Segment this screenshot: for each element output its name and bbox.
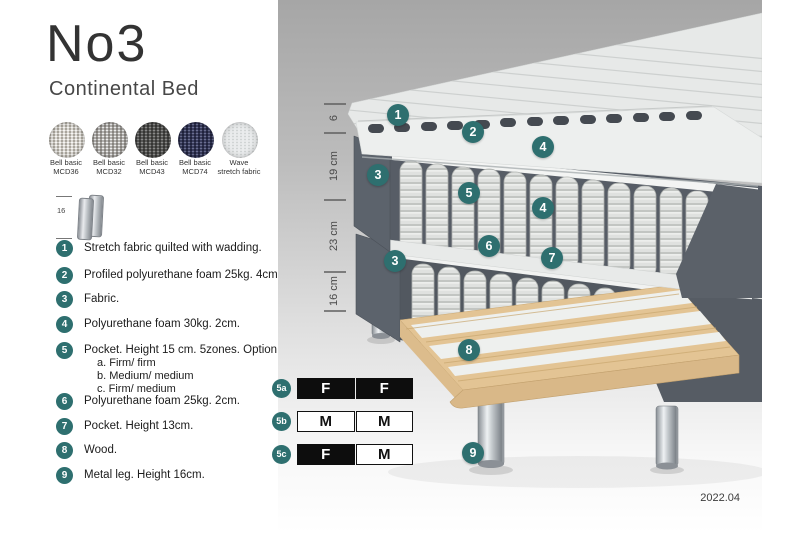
legend-item-6: 6 Polyurethane foam 25kg. 2cm. <box>56 393 286 410</box>
legend-number-badge: 4 <box>56 316 73 333</box>
legend-item-9: 9 Metal leg. Height 16cm. <box>56 467 286 484</box>
legend-option-a: a. Firm/ firm <box>97 357 287 369</box>
product-sheet: No3 Continental Bed Bell basicMCD36 Bell… <box>0 0 800 533</box>
legend-item-4: 4 Polyurethane foam 30kg. 2cm. <box>56 316 286 333</box>
firmness-cell: F <box>297 378 355 399</box>
fabric-swatch-mcd74 <box>178 122 214 158</box>
legend-number-badge: 1 <box>56 240 73 257</box>
swatch-label: Bell basicMCD32 <box>85 159 133 176</box>
callout-9-metal-leg: 9 <box>462 442 484 464</box>
callout-6-foam-base: 6 <box>478 235 500 257</box>
swatch-label: Bell basicMCD43 <box>128 159 176 176</box>
callout-4-foam-mid: 4 <box>532 197 554 219</box>
firmness-badge-5c: 5c <box>272 445 291 464</box>
callout-3-fabric-upper: 3 <box>367 164 389 186</box>
firmness-badge-5b: 5b <box>272 412 291 431</box>
fabric-swatch-mcd36 <box>49 122 85 158</box>
legend-item-1: 1 Stretch fabric quilted with wadding. <box>56 240 286 257</box>
legend-item-3: 3 Fabric. <box>56 291 286 308</box>
firmness-row-5c: 5c F M <box>272 444 422 466</box>
dimension-label-leg: 16 cm <box>328 261 342 321</box>
version-date: 2022.04 <box>628 492 740 504</box>
fabric-swatch-wave <box>222 122 258 158</box>
leg-height-value: 16 <box>57 206 65 215</box>
callout-8-wood: 8 <box>458 339 480 361</box>
legend-number-badge: 9 <box>56 467 73 484</box>
firmness-row-5a: 5a F F <box>272 378 422 400</box>
firmness-cell: F <box>297 444 355 465</box>
legend-option-b: b. Medium/ medium <box>97 370 287 382</box>
callout-7-pocket-13: 7 <box>541 247 563 269</box>
legend-number-badge: 6 <box>56 393 73 410</box>
firmness-bar: F M <box>297 444 413 465</box>
swatch-label: Bell basicMCD36 <box>42 159 90 176</box>
firmness-bar: F F <box>297 378 413 399</box>
dimension-tick <box>56 238 72 239</box>
legend-item-8: 8 Wood. <box>56 442 286 459</box>
legend-item-7: 7 Pocket. Height 13cm. <box>56 418 286 435</box>
dimension-tick <box>56 196 72 197</box>
metal-leg-icon <box>77 198 94 241</box>
legend-number-badge: 7 <box>56 418 73 435</box>
page-title: No3 <box>46 14 147 74</box>
leg-height-detail: 16 <box>56 192 116 242</box>
callout-5-pocket-15: 5 <box>458 182 480 204</box>
legend-number-badge: 3 <box>56 291 73 308</box>
legend-item-2: 2 Profiled polyurethane foam 25kg. 4cm. <box>56 267 286 284</box>
firmness-cell: F <box>356 378 414 399</box>
fabric-swatch-mcd32 <box>92 122 128 158</box>
swatch-label: Wavestretch fabric <box>215 159 263 176</box>
callout-2-profiled-foam: 2 <box>462 121 484 143</box>
legend-number-badge: 2 <box>56 267 73 284</box>
dimension-label-base: 23 cm <box>328 206 342 266</box>
page-subtitle: Continental Bed <box>49 78 199 101</box>
dimension-label-upper-mattress: 19 cm <box>328 136 342 196</box>
firmness-bar: M M <box>297 411 413 432</box>
callout-1-stretch-fabric: 1 <box>387 104 409 126</box>
firmness-cell: M <box>297 411 355 432</box>
firmness-cell: M <box>356 444 414 465</box>
firmness-cell: M <box>356 411 414 432</box>
callout-3-fabric-base: 3 <box>384 250 406 272</box>
legend-number-badge: 8 <box>56 442 73 459</box>
swatch-label: Bell basicMCD74 <box>171 159 219 176</box>
legend-number-badge: 5 <box>56 342 73 359</box>
callout-4-foam-top: 4 <box>532 136 554 158</box>
fabric-swatch-mcd43 <box>135 122 171 158</box>
firmness-badge-5a: 5a <box>272 379 291 398</box>
firmness-row-5b: 5b M M <box>272 411 422 433</box>
